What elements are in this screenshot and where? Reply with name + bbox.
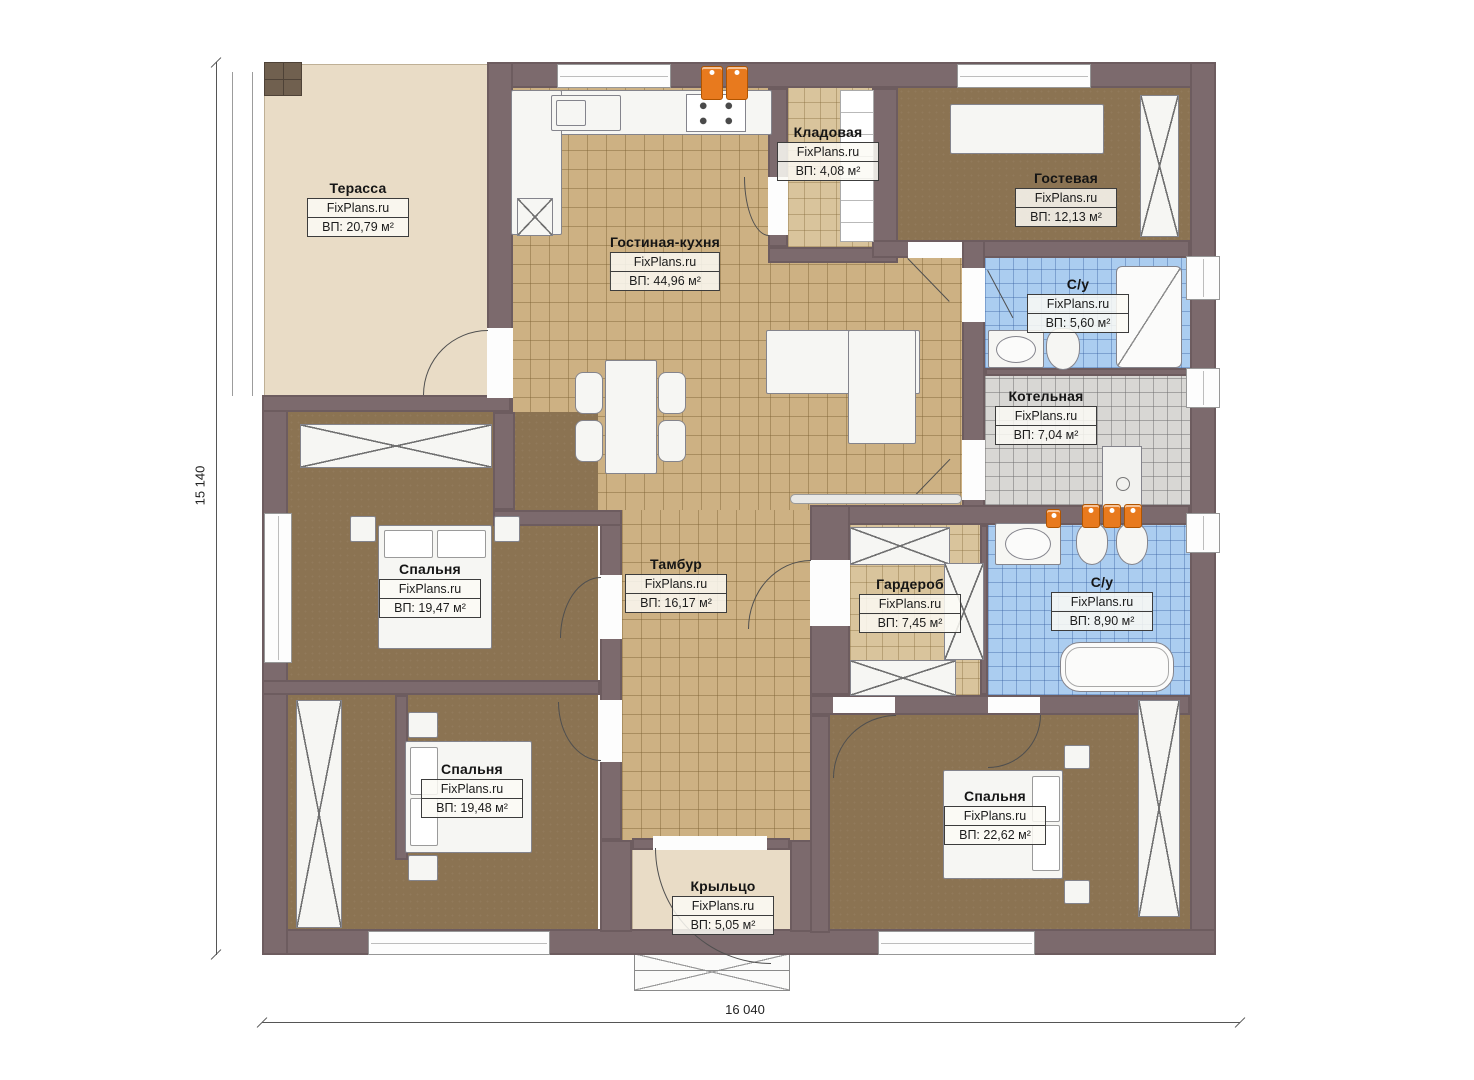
area-box: ВП: 5,60 м² [1027,313,1129,333]
horizontal-dimension-line [262,1022,1240,1023]
wall-left [262,395,288,955]
room-name: Крыльцо [672,878,774,894]
nightstand [408,712,438,738]
brand-box: FixPlans.ru [610,252,720,272]
wall-hung-toilet [1076,523,1108,565]
brand-box: FixPlans.ru [625,574,727,594]
pillow [384,530,433,558]
kitchen-appliance [517,198,553,236]
room-name: Кладовая [777,124,879,140]
nightstand [350,516,376,542]
boiler-window [1186,368,1220,408]
bedroom1-door-opening [600,575,622,639]
terrace-railing [252,72,253,396]
room-name: Гостевая [1015,170,1117,186]
room-label-storage: Кладовая FixPlans.ru ВП: 4,08 м² [777,124,879,181]
dining-table [605,360,657,474]
kitchen-sink-basin [556,100,586,126]
bedroom2-wardrobe [296,700,342,928]
tv-bench [790,494,962,504]
room-label-boiler: Котельная FixPlans.ru ВП: 7,04 м² [995,388,1097,445]
bathroom2-sink [1005,528,1051,560]
terrace-railing [232,72,233,396]
bathtub [1060,642,1174,692]
sofa-chaise [848,330,916,444]
guest-sofa [950,104,1104,154]
chimney [264,62,302,96]
room-name: Спальня [944,788,1046,804]
room-label-bedroom3: Спальня FixPlans.ru ВП: 22,62 м² [944,788,1046,845]
brand-box: FixPlans.ru [1051,592,1153,612]
brand-box: FixPlans.ru [859,594,961,614]
heater-icon [1082,504,1100,528]
room-label-terrace: Терасса FixPlans.ru ВП: 20,79 м² [307,180,409,237]
guest-window [957,64,1091,88]
wall-terrace-bottom [262,395,511,412]
pillow [437,530,486,558]
room-label-bedroom2: Спальня FixPlans.ru ВП: 19,48 м² [421,761,523,818]
heater-icon [726,66,748,100]
heater-icon [1124,504,1142,528]
room-name: Гардероб [859,576,961,592]
bedroom3-door-opening [833,697,895,713]
guest-wardrobe [1140,95,1179,237]
area-box: ВП: 16,17 м² [625,593,727,613]
room-label-bathroom1: С/у FixPlans.ru ВП: 5,60 м² [1027,276,1129,333]
bedroom2-window [368,931,550,955]
heater-icon [1103,504,1121,528]
room-label-bedroom1: Спальня FixPlans.ru ВП: 19,47 м² [379,561,481,618]
room-name: Спальня [421,761,523,777]
room-label-vestibule: Тамбур FixPlans.ru ВП: 16,17 м² [625,556,727,613]
nightstand [1064,745,1090,769]
area-box: ВП: 8,90 м² [1051,611,1153,631]
bedroom3-wardrobe [1138,700,1180,917]
area-box: ВП: 20,79 м² [307,217,409,237]
brand-box: FixPlans.ru [1015,188,1117,208]
wall-porch-left [600,840,632,932]
brand-box: FixPlans.ru [944,806,1046,826]
area-box: ВП: 19,47 м² [379,598,481,618]
bathroom1-window [1186,256,1220,300]
room-label-guest: Гостевая FixPlans.ru ВП: 12,13 м² [1015,170,1117,227]
boiler-unit [1102,446,1142,508]
bathroom1-door-opening [962,268,985,322]
wall-right [1190,62,1216,955]
area-box: ВП: 7,04 м² [995,425,1097,445]
width-dimension-label: 16 040 [700,1002,790,1017]
wardrobe-cabinet [850,527,950,565]
heater-icon [1046,509,1061,528]
bidet [1116,523,1148,565]
wall-bedroom1-living [493,412,515,510]
room-label-porch: Крыльцо FixPlans.ru ВП: 5,05 м² [672,878,774,935]
area-box: ВП: 44,96 м² [610,271,720,291]
storage-door-opening [768,177,788,235]
brand-box: FixPlans.ru [421,779,523,799]
room-name: Тамбур [625,556,727,572]
nightstand [494,516,520,542]
bedroom1-window [264,513,292,663]
heater-icon [701,66,723,100]
wall-bath1-boiler-divider [985,368,1190,376]
area-box: ВП: 22,62 м² [944,825,1046,845]
bedroom3-window [878,931,1035,955]
dining-chair [658,372,686,414]
bathroom2-window [1186,513,1220,553]
brand-box: FixPlans.ru [307,198,409,218]
room-name: С/у [1027,276,1129,292]
floor-plan: 15 140 16 040 [0,0,1474,1080]
room-label-bathroom2: С/у FixPlans.ru ВП: 8,90 м² [1051,574,1153,631]
area-box: ВП: 19,48 м² [421,798,523,818]
bedroom1-wardrobe [300,424,492,468]
nightstand [408,855,438,881]
area-box: ВП: 12,13 м² [1015,207,1117,227]
guest-door-opening [908,242,962,258]
brand-box: FixPlans.ru [672,896,774,916]
brand-box: FixPlans.ru [1027,294,1129,314]
room-name: Терасса [307,180,409,196]
room-label-wardrobe: Гардероб FixPlans.ru ВП: 7,45 м² [859,576,961,633]
nightstand [1064,880,1090,904]
wardrobe-cabinet [850,660,956,696]
wall-porch-right [790,840,812,932]
wall-bedrooms-divider [262,680,600,695]
bathroom2-door-opening [988,697,1040,713]
wardrobe-door-opening [810,560,850,626]
room-label-living-kitchen: Гостиная-кухня FixPlans.ru ВП: 44,96 м² [610,234,720,291]
room-name: Гостиная-кухня [610,234,720,250]
brand-box: FixPlans.ru [995,406,1097,426]
bedroom2-door-opening [600,700,622,762]
dining-chair [575,420,603,462]
kitchen-window [557,64,671,88]
vertical-dimension-line [216,62,217,955]
brand-box: FixPlans.ru [777,142,879,162]
boiler-door-opening [962,440,985,500]
height-dimension-label: 15 140 [193,446,208,526]
room-name: Спальня [379,561,481,577]
area-box: ВП: 7,45 м² [859,613,961,633]
area-box: ВП: 5,05 м² [672,915,774,935]
room-name: С/у [1051,574,1153,590]
wall-bedroom3-left [810,715,830,933]
brand-box: FixPlans.ru [379,579,481,599]
toilet [1046,328,1080,370]
bathroom1-sink [996,336,1036,363]
area-box: ВП: 4,08 м² [777,161,879,181]
wall-vestibule-left [600,510,622,840]
room-name: Котельная [995,388,1097,404]
terrace-door-opening [487,328,513,398]
dining-chair [658,420,686,462]
dining-chair [575,372,603,414]
